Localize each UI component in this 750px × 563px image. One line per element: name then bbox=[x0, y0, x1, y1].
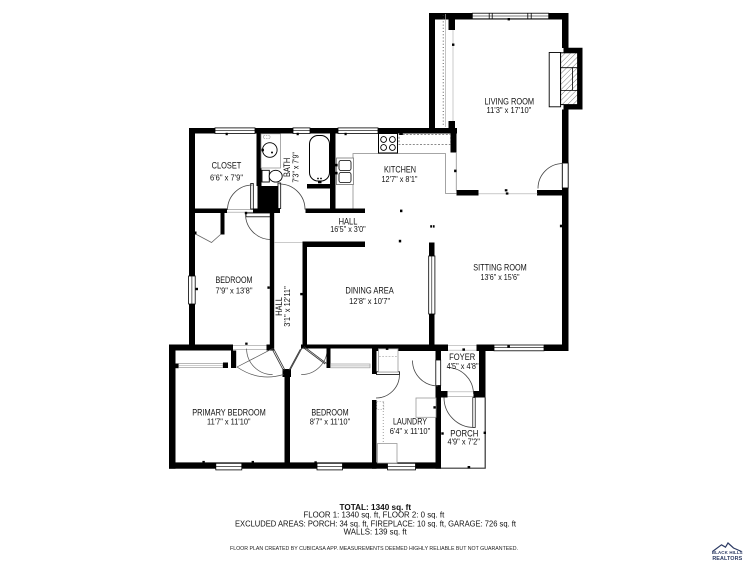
svg-text:16'5" x 3'0": 16'5" x 3'0" bbox=[330, 225, 366, 234]
svg-text:3'1" x 12'11": 3'1" x 12'11" bbox=[283, 286, 292, 327]
svg-text:12'7" x 8'1": 12'7" x 8'1" bbox=[382, 175, 418, 184]
svg-text:BEDROOM: BEDROOM bbox=[311, 407, 348, 417]
svg-text:REALTORS: REALTORS bbox=[712, 556, 742, 562]
svg-text:BEDROOM: BEDROOM bbox=[216, 275, 253, 285]
svg-text:SITTING ROOM: SITTING ROOM bbox=[473, 263, 527, 273]
svg-text:6'4" x 11'10": 6'4" x 11'10" bbox=[390, 427, 431, 436]
svg-text:4'9" x 7'2": 4'9" x 7'2" bbox=[447, 437, 480, 446]
svg-text:WALLS: 139 sq. ft: WALLS: 139 sq. ft bbox=[344, 527, 408, 536]
svg-text:4'5" x 4'8": 4'5" x 4'8" bbox=[447, 362, 479, 371]
svg-text:8'7" x 11'10": 8'7" x 11'10" bbox=[310, 418, 351, 427]
svg-text:KITCHEN: KITCHEN bbox=[384, 164, 416, 174]
svg-text:CLOSET: CLOSET bbox=[212, 161, 242, 171]
svg-text:LAUNDRY: LAUNDRY bbox=[393, 417, 427, 427]
svg-text:7'3" x 7'9": 7'3" x 7'9" bbox=[292, 152, 301, 183]
svg-text:11'7" x 11'10": 11'7" x 11'10" bbox=[207, 418, 251, 427]
svg-text:12'8" x 10'7": 12'8" x 10'7" bbox=[349, 297, 390, 306]
svg-text:11'3" x 17'10": 11'3" x 17'10" bbox=[487, 106, 532, 115]
svg-text:6'6" x 7'9": 6'6" x 7'9" bbox=[210, 174, 243, 183]
svg-text:BLACK HILLS: BLACK HILLS bbox=[712, 550, 743, 555]
svg-text:DINING AREA: DINING AREA bbox=[345, 286, 394, 296]
svg-text:FLOOR PLAN CREATED BY CUBICASA: FLOOR PLAN CREATED BY CUBICASA APP. MEAS… bbox=[230, 546, 518, 552]
svg-text:FOYER: FOYER bbox=[449, 352, 475, 362]
svg-text:7'9" x 13'8": 7'9" x 13'8" bbox=[216, 287, 253, 296]
svg-text:PRIMARY BEDROOM: PRIMARY BEDROOM bbox=[192, 407, 266, 417]
svg-text:13'6" x 15'6": 13'6" x 15'6" bbox=[481, 273, 520, 282]
